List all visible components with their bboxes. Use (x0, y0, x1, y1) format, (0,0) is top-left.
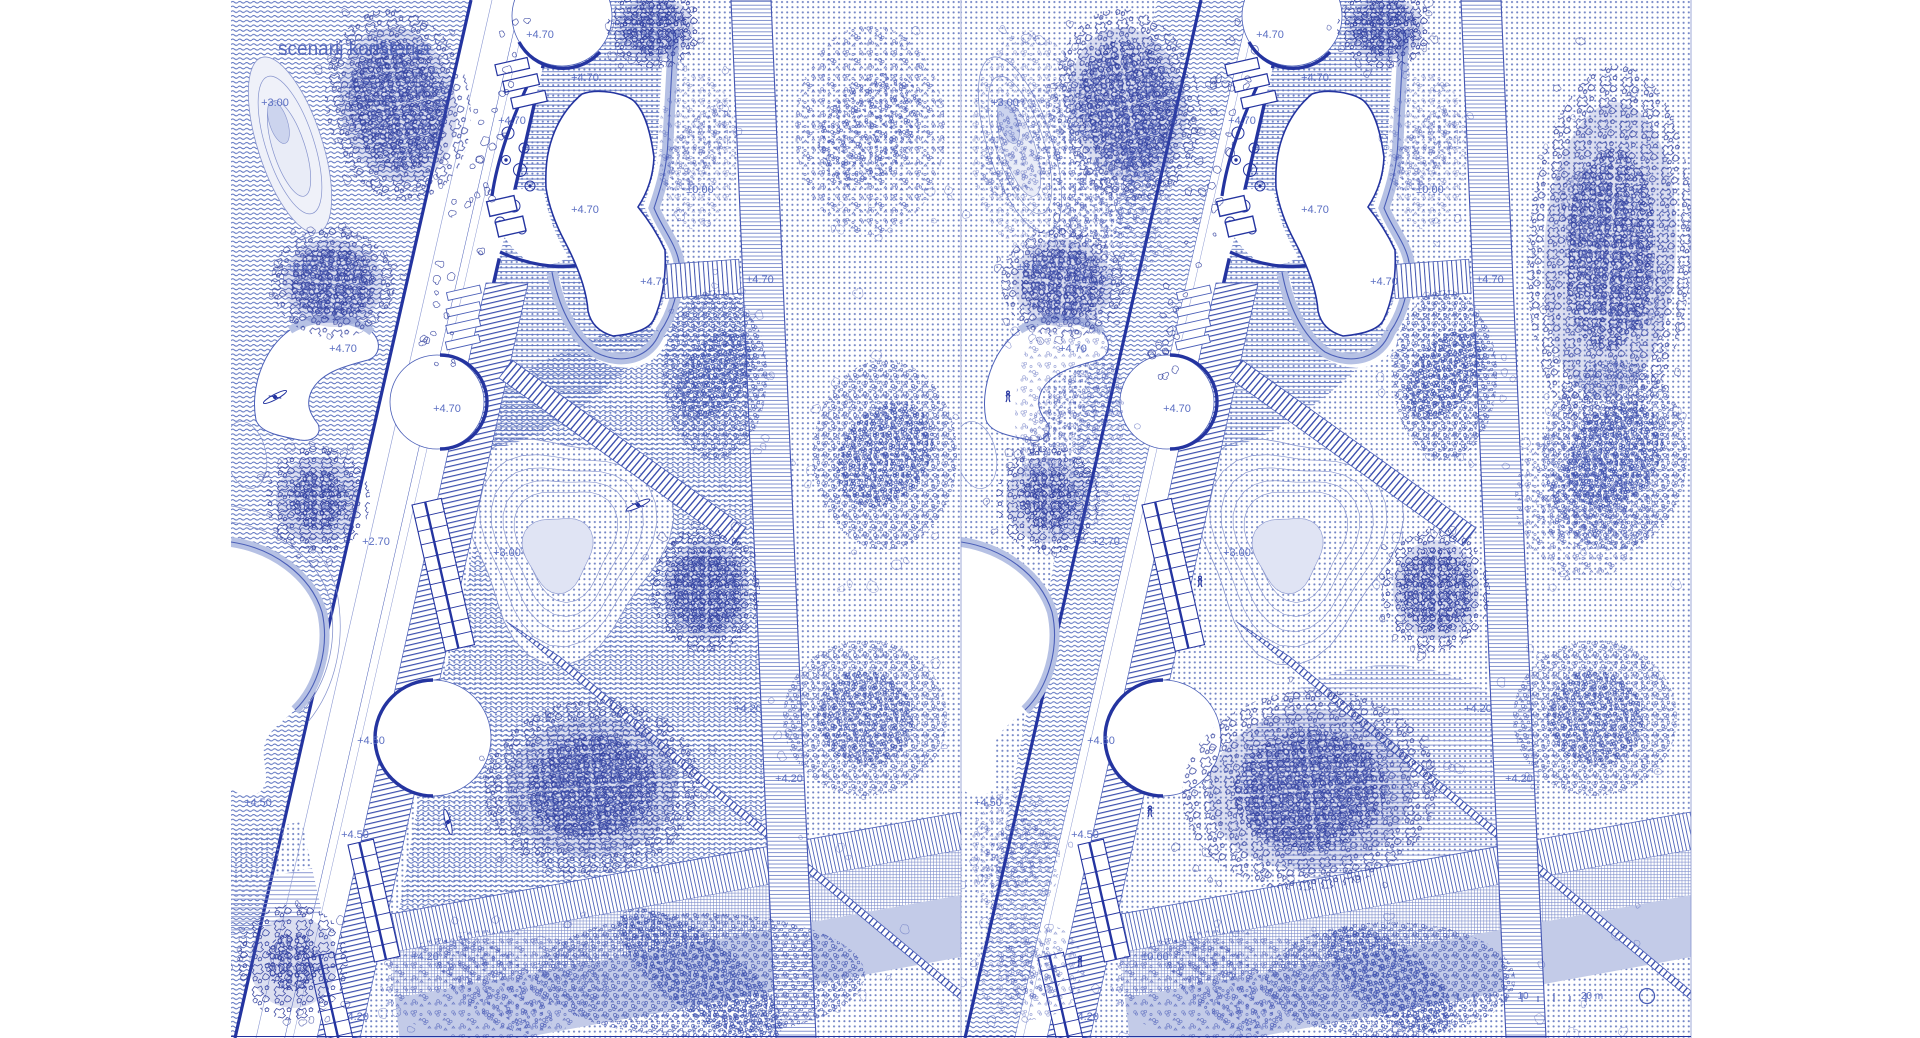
svg-text:+4.20: +4.20 (1464, 703, 1492, 715)
svg-text:+4.50: +4.50 (244, 797, 272, 809)
svg-text:±0.00: ±0.00 (288, 262, 313, 273)
svg-text:±0.00: ±0.00 (1416, 184, 1443, 196)
svg-text:20 m: 20 m (1581, 991, 1603, 1002)
svg-text:+4.70: +4.70 (1228, 115, 1256, 127)
svg-text:±0.00: ±0.00 (1018, 262, 1043, 273)
svg-text:+4.20: +4.20 (734, 703, 762, 715)
svg-text:10: 10 (1517, 991, 1529, 1002)
svg-text:+4.20: +4.20 (411, 951, 439, 963)
svg-text:+4.70: +4.70 (433, 403, 461, 415)
svg-text:+2.70: +2.70 (1092, 536, 1120, 548)
svg-text:+4.70: +4.70 (1301, 72, 1329, 84)
svg-text:±0.00: ±0.00 (686, 184, 713, 196)
svg-text:+4.70: +4.70 (1370, 276, 1398, 288)
svg-text:+4.50: +4.50 (357, 735, 385, 747)
svg-text:±4.70: ±4.70 (746, 274, 773, 286)
svg-text:+4.70: +4.70 (571, 72, 599, 84)
svg-text:+3.00: +3.00 (493, 547, 521, 559)
svg-text:+4.20: +4.20 (1505, 773, 1533, 785)
svg-text:±4.70: ±4.70 (1476, 274, 1503, 286)
svg-text:+4.70: +4.70 (571, 204, 599, 216)
svg-text:+4.70: +4.70 (640, 276, 668, 288)
svg-text:+4.50: +4.50 (1087, 735, 1115, 747)
svg-text:+4.20: +4.20 (775, 773, 803, 785)
svg-text:scenarij korištenja: scenarij korištenja (278, 39, 430, 60)
svg-text:±0.00: ±0.00 (1141, 951, 1168, 963)
svg-text:+4.70: +4.70 (498, 115, 526, 127)
svg-text:+4.70: +4.70 (1301, 204, 1329, 216)
svg-text:+4.50: +4.50 (341, 829, 369, 841)
svg-text:+4.70: +4.70 (1163, 403, 1191, 415)
svg-text:+2.70: +2.70 (362, 536, 390, 548)
svg-text:+4.70: +4.70 (329, 343, 357, 355)
svg-text:+4.50: +4.50 (1071, 829, 1099, 841)
svg-text:+3.00: +3.00 (261, 97, 289, 109)
svg-text:+4.70: +4.70 (526, 29, 554, 41)
svg-text:+3.00: +3.00 (1223, 547, 1251, 559)
svg-text:+4.70: +4.70 (1256, 29, 1284, 41)
